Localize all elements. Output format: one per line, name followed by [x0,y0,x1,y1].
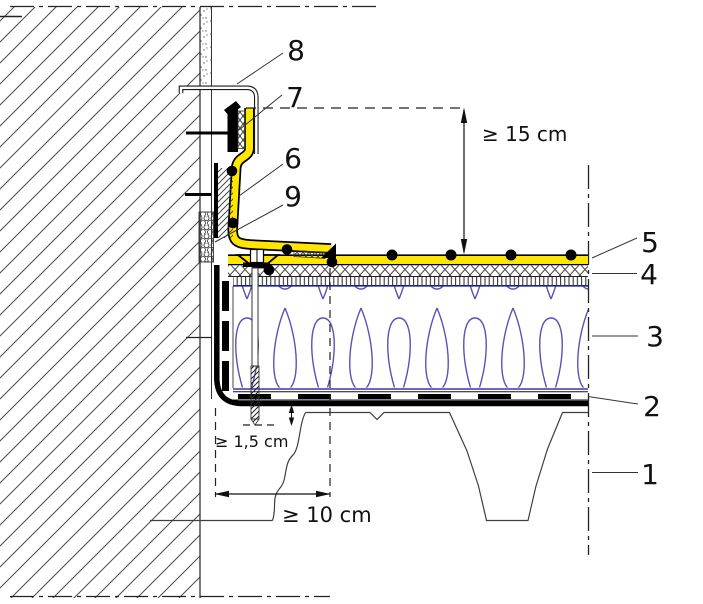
render-stipple-strip [201,7,212,86]
protection-crosshatch-band [228,266,588,277]
callout-4: 4 [640,258,658,291]
fixing-dot [282,244,293,255]
insulation-loops [233,287,588,388]
leader-2 [588,397,638,405]
dim-label-edge-distance: ≥ 10 cm [282,503,372,527]
separation-comb-band [233,277,588,286]
sealant-strip [199,212,214,262]
screw-shaft [252,268,258,366]
fixing-dot [264,265,275,276]
wall-section [0,7,233,598]
callout-8: 8 [287,34,305,67]
screw-tip [251,419,259,425]
wall-hatch-area [0,7,200,598]
fixing-dot [566,250,577,261]
fixing-dot [506,250,517,261]
fixing-dot [327,257,338,268]
leader-6 [239,164,283,196]
leader-8 [237,53,283,84]
arrow-left-icon [215,491,230,497]
callout-6: 6 [284,142,302,175]
separation-layer [228,266,588,286]
arrow-down-icon [461,239,467,255]
callout-5: 5 [641,226,659,259]
roof-parapet-detail-drawing: ≥ 15 cm ≥ 1,5 cm ≥ 10 cm 8 7 6 9 5 4 [0,0,703,604]
arrow-down-icon [289,418,294,427]
callout-3: 3 [646,320,664,353]
dim-label-embedment: ≥ 1,5 cm [215,432,288,451]
callout-2: 2 [643,390,661,423]
screw-thread [251,366,259,419]
arrow-right-icon [316,491,331,497]
callout-9: 9 [284,180,302,213]
clamping-profile [224,101,246,152]
dim-label-upstand: ≥ 15 cm [482,122,567,146]
leader-5 [592,238,637,258]
membrane-band [228,255,588,265]
insulation-layer [233,287,588,390]
flashing-yellow-core [233,108,331,249]
fixing-dot [228,218,239,229]
callout-1: 1 [641,458,659,491]
callout-7: 7 [286,81,304,114]
fixing-dot [227,166,238,177]
detail-section-canvas: ≥ 15 cm ≥ 1,5 cm ≥ 10 cm 8 7 6 9 5 4 [0,0,703,604]
arrow-up-icon [461,108,467,124]
fixing-dot [387,250,398,261]
fixing-dot [446,250,457,261]
